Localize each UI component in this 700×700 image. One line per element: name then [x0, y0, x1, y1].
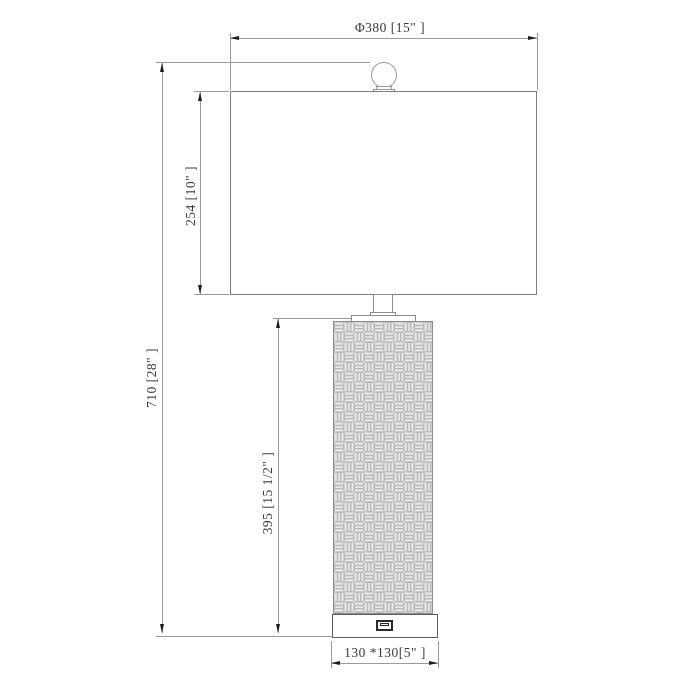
dim-label-base-size: 130 *130[5" ] — [344, 645, 426, 661]
extension-line-top-overall — [156, 62, 370, 63]
dim-label-shade-width: Φ380 [15" ] — [355, 20, 425, 36]
dimension-line-base-width — [331, 663, 438, 664]
arrowhead-left — [230, 36, 239, 40]
arrowhead-up — [198, 92, 202, 101]
arrowhead-down — [160, 624, 164, 633]
lamp-body — [333, 321, 433, 614]
arrowhead-up — [160, 63, 164, 72]
arrowhead-right — [528, 36, 537, 40]
dim-label-body-height: 395 [15 1/2" ] — [260, 452, 276, 535]
extension-line-base-right — [438, 641, 439, 668]
lamp-shade-outline — [230, 91, 537, 295]
extension-line-bottom-overall — [156, 636, 332, 637]
dimension-line-body-height — [278, 319, 279, 633]
basket-weave-pattern — [334, 322, 432, 613]
usb-port-inner — [380, 623, 389, 626]
finial-ball — [371, 62, 397, 88]
lamp-neck — [373, 294, 393, 314]
dimension-line-shade-width — [230, 38, 537, 39]
usb-port-icon — [376, 620, 393, 631]
dim-label-shade-height: 254 [10" ] — [183, 166, 199, 226]
extension-line-shade-bottom — [194, 294, 229, 295]
technical-drawing-canvas: Φ380 [15" ] 710 [28" ] 254 [10" ] 395 [1… — [0, 0, 700, 700]
dimension-line-shade-height — [200, 92, 201, 294]
extension-line-shade-right — [537, 33, 538, 90]
dimension-line-overall-height — [162, 63, 163, 633]
arrowhead-right — [429, 661, 438, 665]
extension-line-body-top — [273, 318, 351, 319]
arrowhead-down — [198, 285, 202, 294]
arrowhead-left — [331, 661, 340, 665]
dim-label-overall-height: 710 [28" ] — [144, 348, 160, 408]
arrowhead-up — [276, 319, 280, 328]
arrowhead-down — [276, 624, 280, 633]
